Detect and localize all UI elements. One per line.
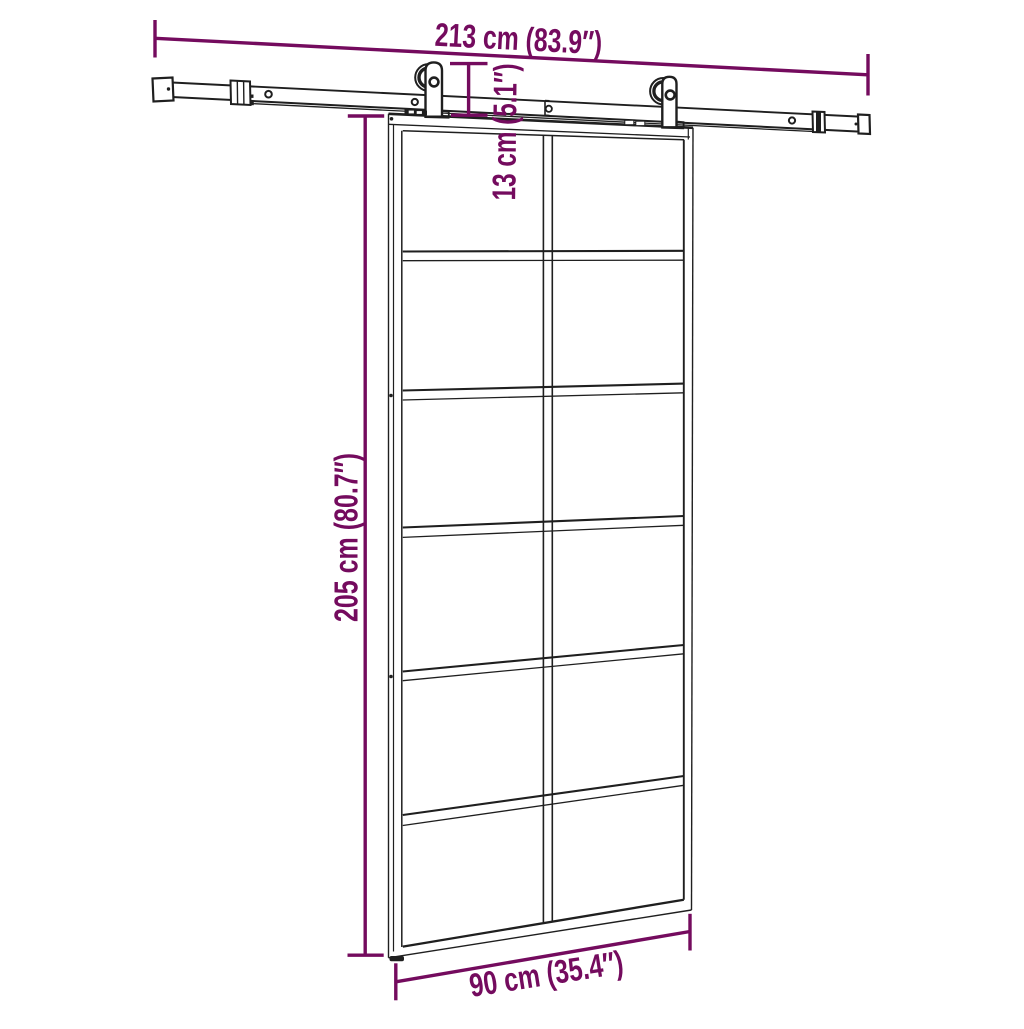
svg-text:13 cm (5.1″): 13 cm (5.1″) — [485, 63, 524, 200]
svg-text:205 cm (80.7″): 205 cm (80.7″) — [328, 453, 365, 622]
